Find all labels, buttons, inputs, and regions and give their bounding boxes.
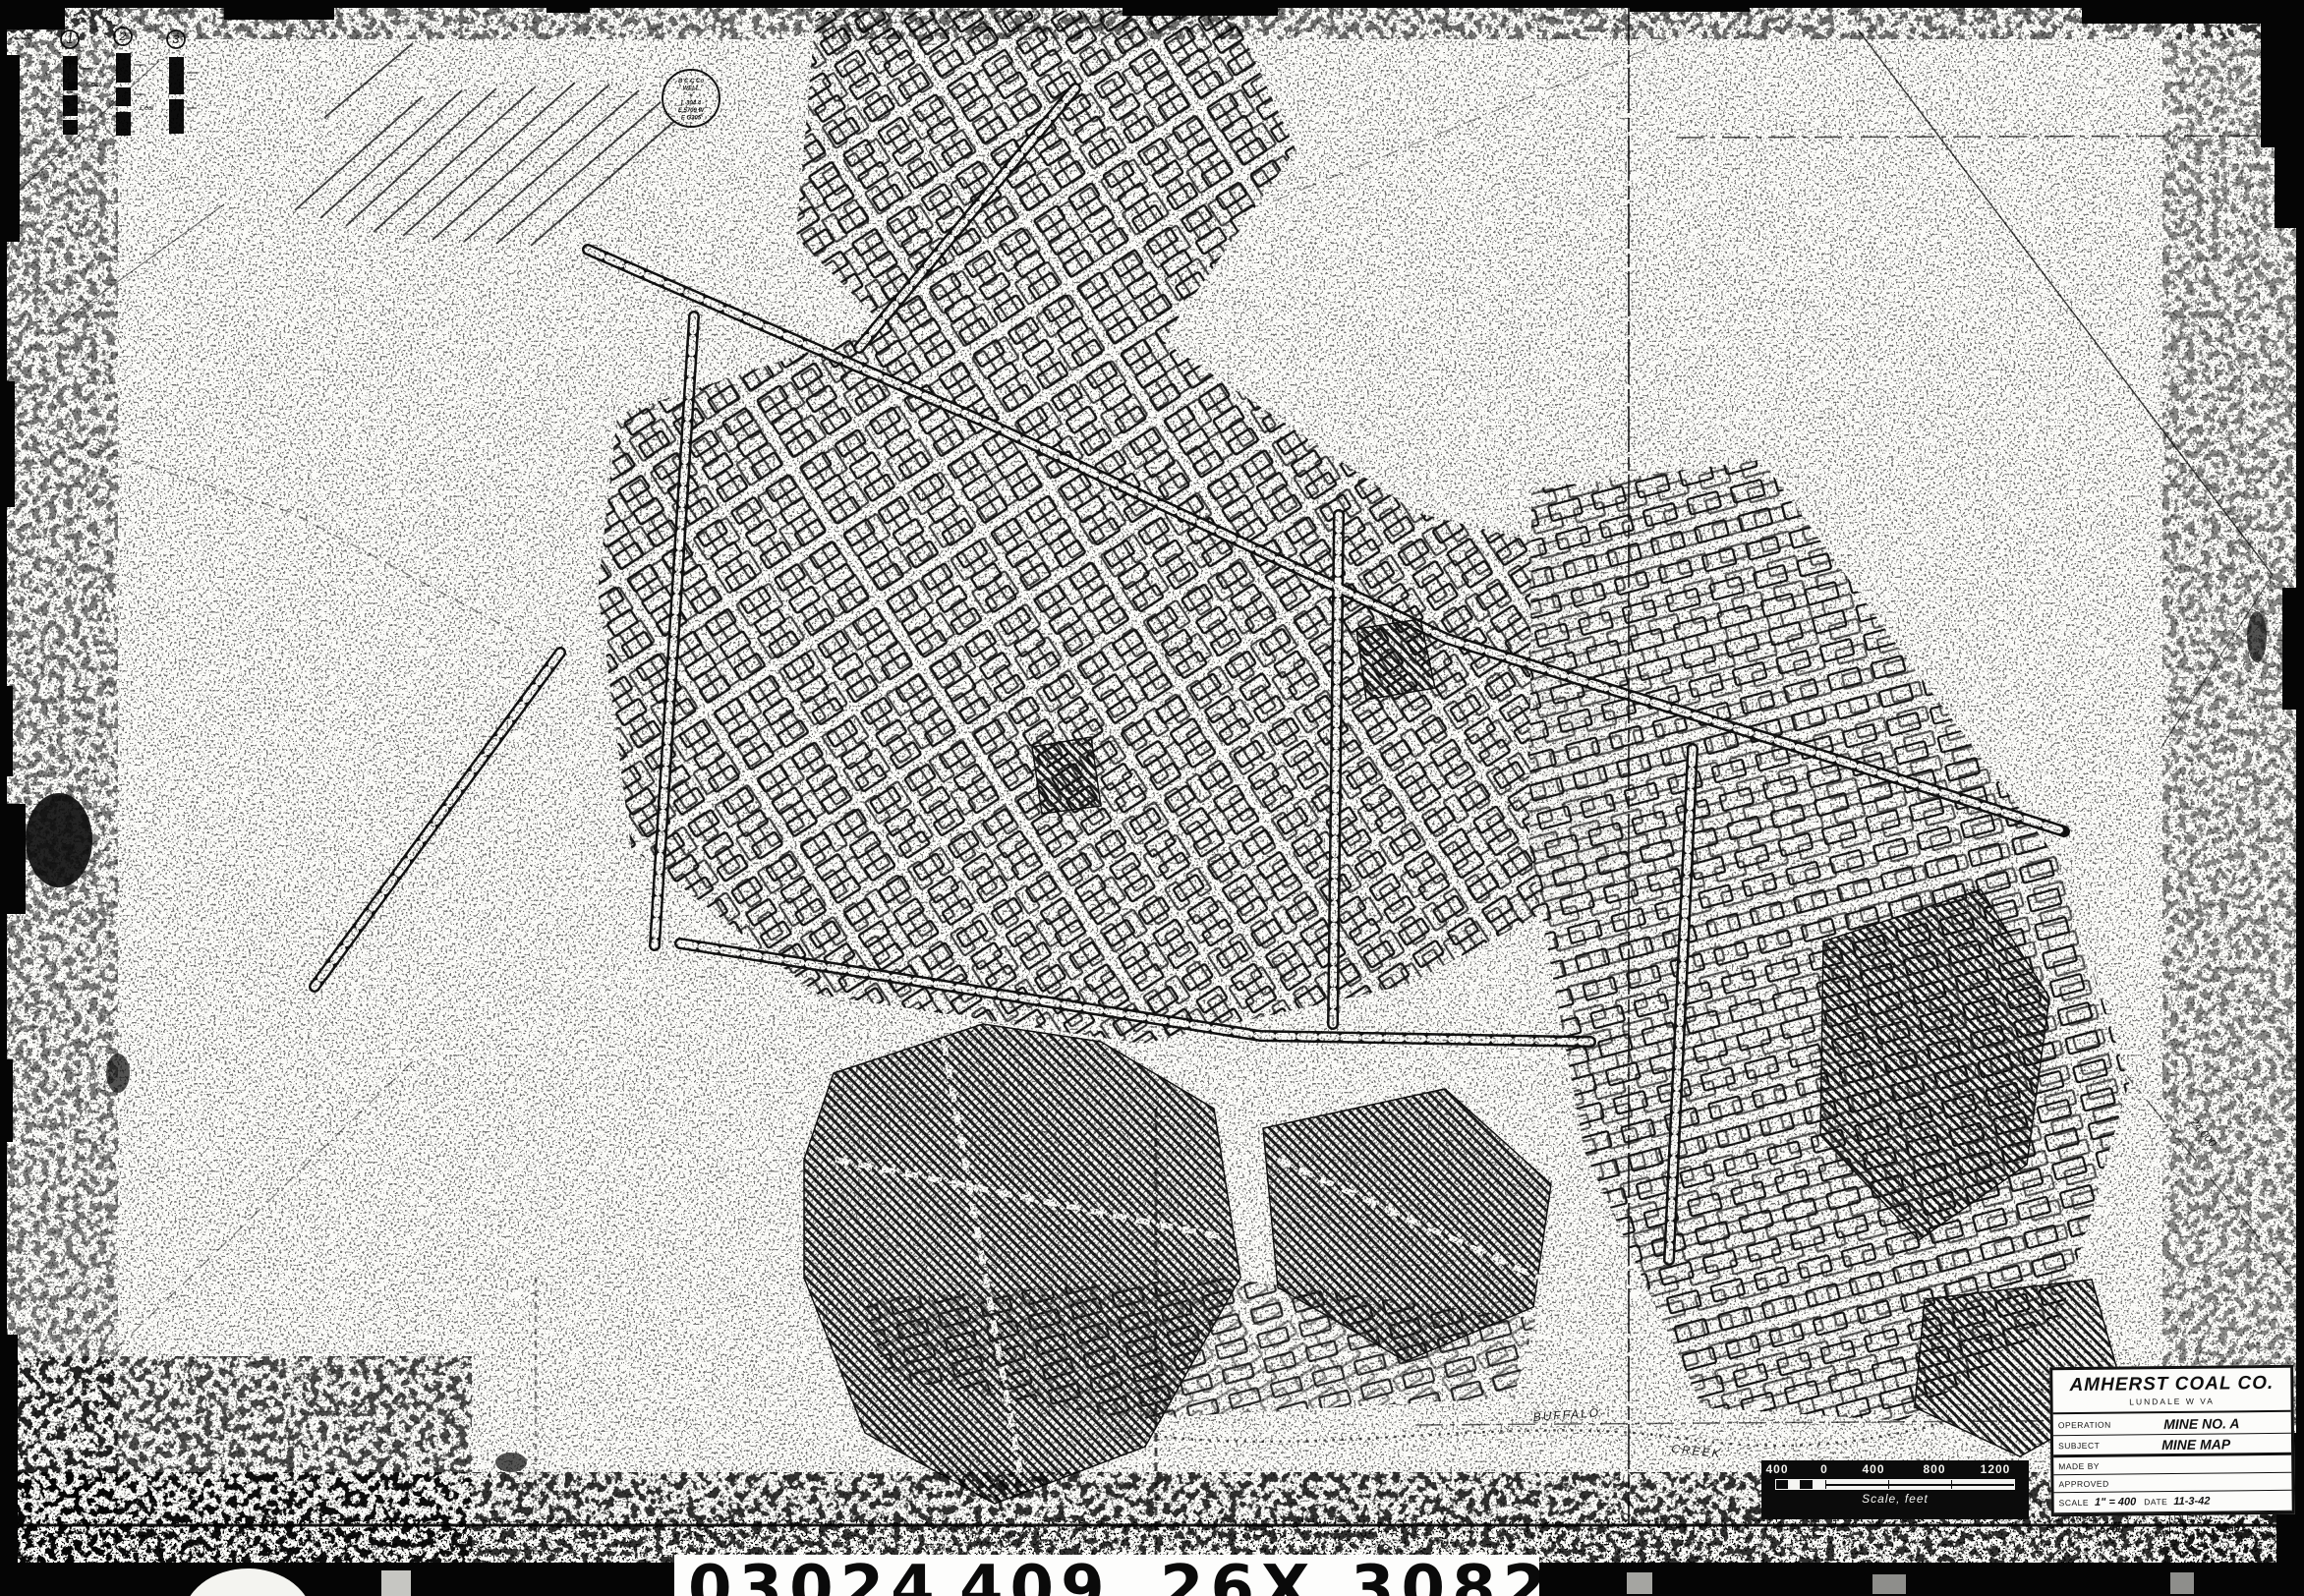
subject-value: MINE MAP	[2105, 1435, 2286, 1453]
scale-bar-caption: Scale, feet	[1761, 1492, 2029, 1506]
company-name: AMHERST COAL CO.	[2069, 1373, 2274, 1396]
scale-label: SCALE	[2059, 1498, 2089, 1508]
film-noise	[0, 0, 2304, 1596]
operation-label: OPERATION	[2058, 1419, 2111, 1430]
film-code-4: 308232	[1351, 1558, 1539, 1596]
operation-value: MINE NO. A	[2117, 1414, 2286, 1432]
changes-value: 5700	[2058, 1523, 2165, 1536]
scale-bar-ticks: 400 0 400 800 1200	[1761, 1462, 2029, 1478]
approved-label: APPROVED	[2058, 1478, 2108, 1489]
date-value: 11-3-42	[2173, 1496, 2210, 1508]
title-block: AMHERST COAL CO. LUNDALE W VA OPERATION …	[2049, 1365, 2295, 1517]
scale-tick: 400	[1862, 1462, 1884, 1476]
file-no-label: FILE NO.	[2174, 1512, 2288, 1522]
company-location: LUNDALE W VA	[2129, 1396, 2215, 1407]
scale-tick: 400	[1765, 1462, 1788, 1476]
scale-tick: 1200	[1981, 1462, 2011, 1476]
film-code-strip: 03024 409 26X 308232	[674, 1555, 1539, 1596]
graphic-scale-bar: 400 0 400 800 1200 Scale, feet	[1761, 1460, 2029, 1519]
made-by-label: MADE BY	[2058, 1460, 2100, 1470]
film-code-2: 409	[959, 1558, 1112, 1596]
changes-label: CHANGES	[2058, 1513, 2165, 1523]
subject-label: SUBJECT	[2058, 1440, 2100, 1450]
map-canvas: BUFFALO CREEK 24,000 24,000 1 2 3	[0, 0, 2304, 1596]
scale-bar-graphic	[1775, 1479, 2015, 1490]
film-code-3: 26X	[1160, 1558, 1316, 1596]
scanned-mine-map: BUFFALO CREEK 24,000 24,000 1 2 3	[0, 0, 2304, 1596]
file-no-value: A-601	[2174, 1522, 2288, 1535]
scale-tick: 0	[1820, 1462, 1828, 1476]
film-code-1: 03024	[688, 1558, 942, 1596]
scale-tick: 800	[1923, 1462, 1945, 1476]
scale-value: 1" = 400	[2095, 1496, 2136, 1508]
date-label: DATE	[2144, 1497, 2167, 1507]
